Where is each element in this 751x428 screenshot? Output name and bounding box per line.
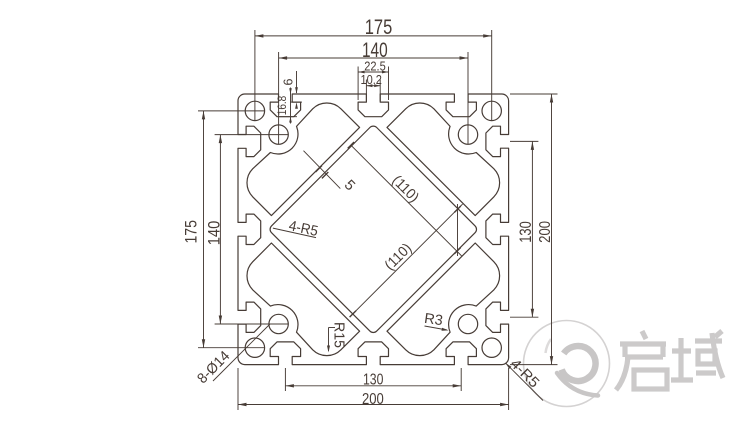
svg-text:16.8: 16.8 — [277, 96, 289, 116]
svg-text:175: 175 — [365, 16, 393, 39]
svg-text:130: 130 — [517, 221, 535, 243]
svg-text:200: 200 — [362, 391, 384, 408]
svg-text:140: 140 — [205, 221, 224, 246]
svg-text:6: 6 — [281, 78, 295, 85]
svg-text:R3: R3 — [423, 311, 444, 329]
svg-text:175: 175 — [182, 220, 201, 244]
svg-text:10.2: 10.2 — [360, 73, 382, 87]
svg-text:22.5: 22.5 — [364, 60, 386, 74]
svg-text:130: 130 — [363, 372, 383, 389]
svg-text:R15: R15 — [331, 322, 347, 348]
svg-text:200: 200 — [537, 221, 554, 243]
